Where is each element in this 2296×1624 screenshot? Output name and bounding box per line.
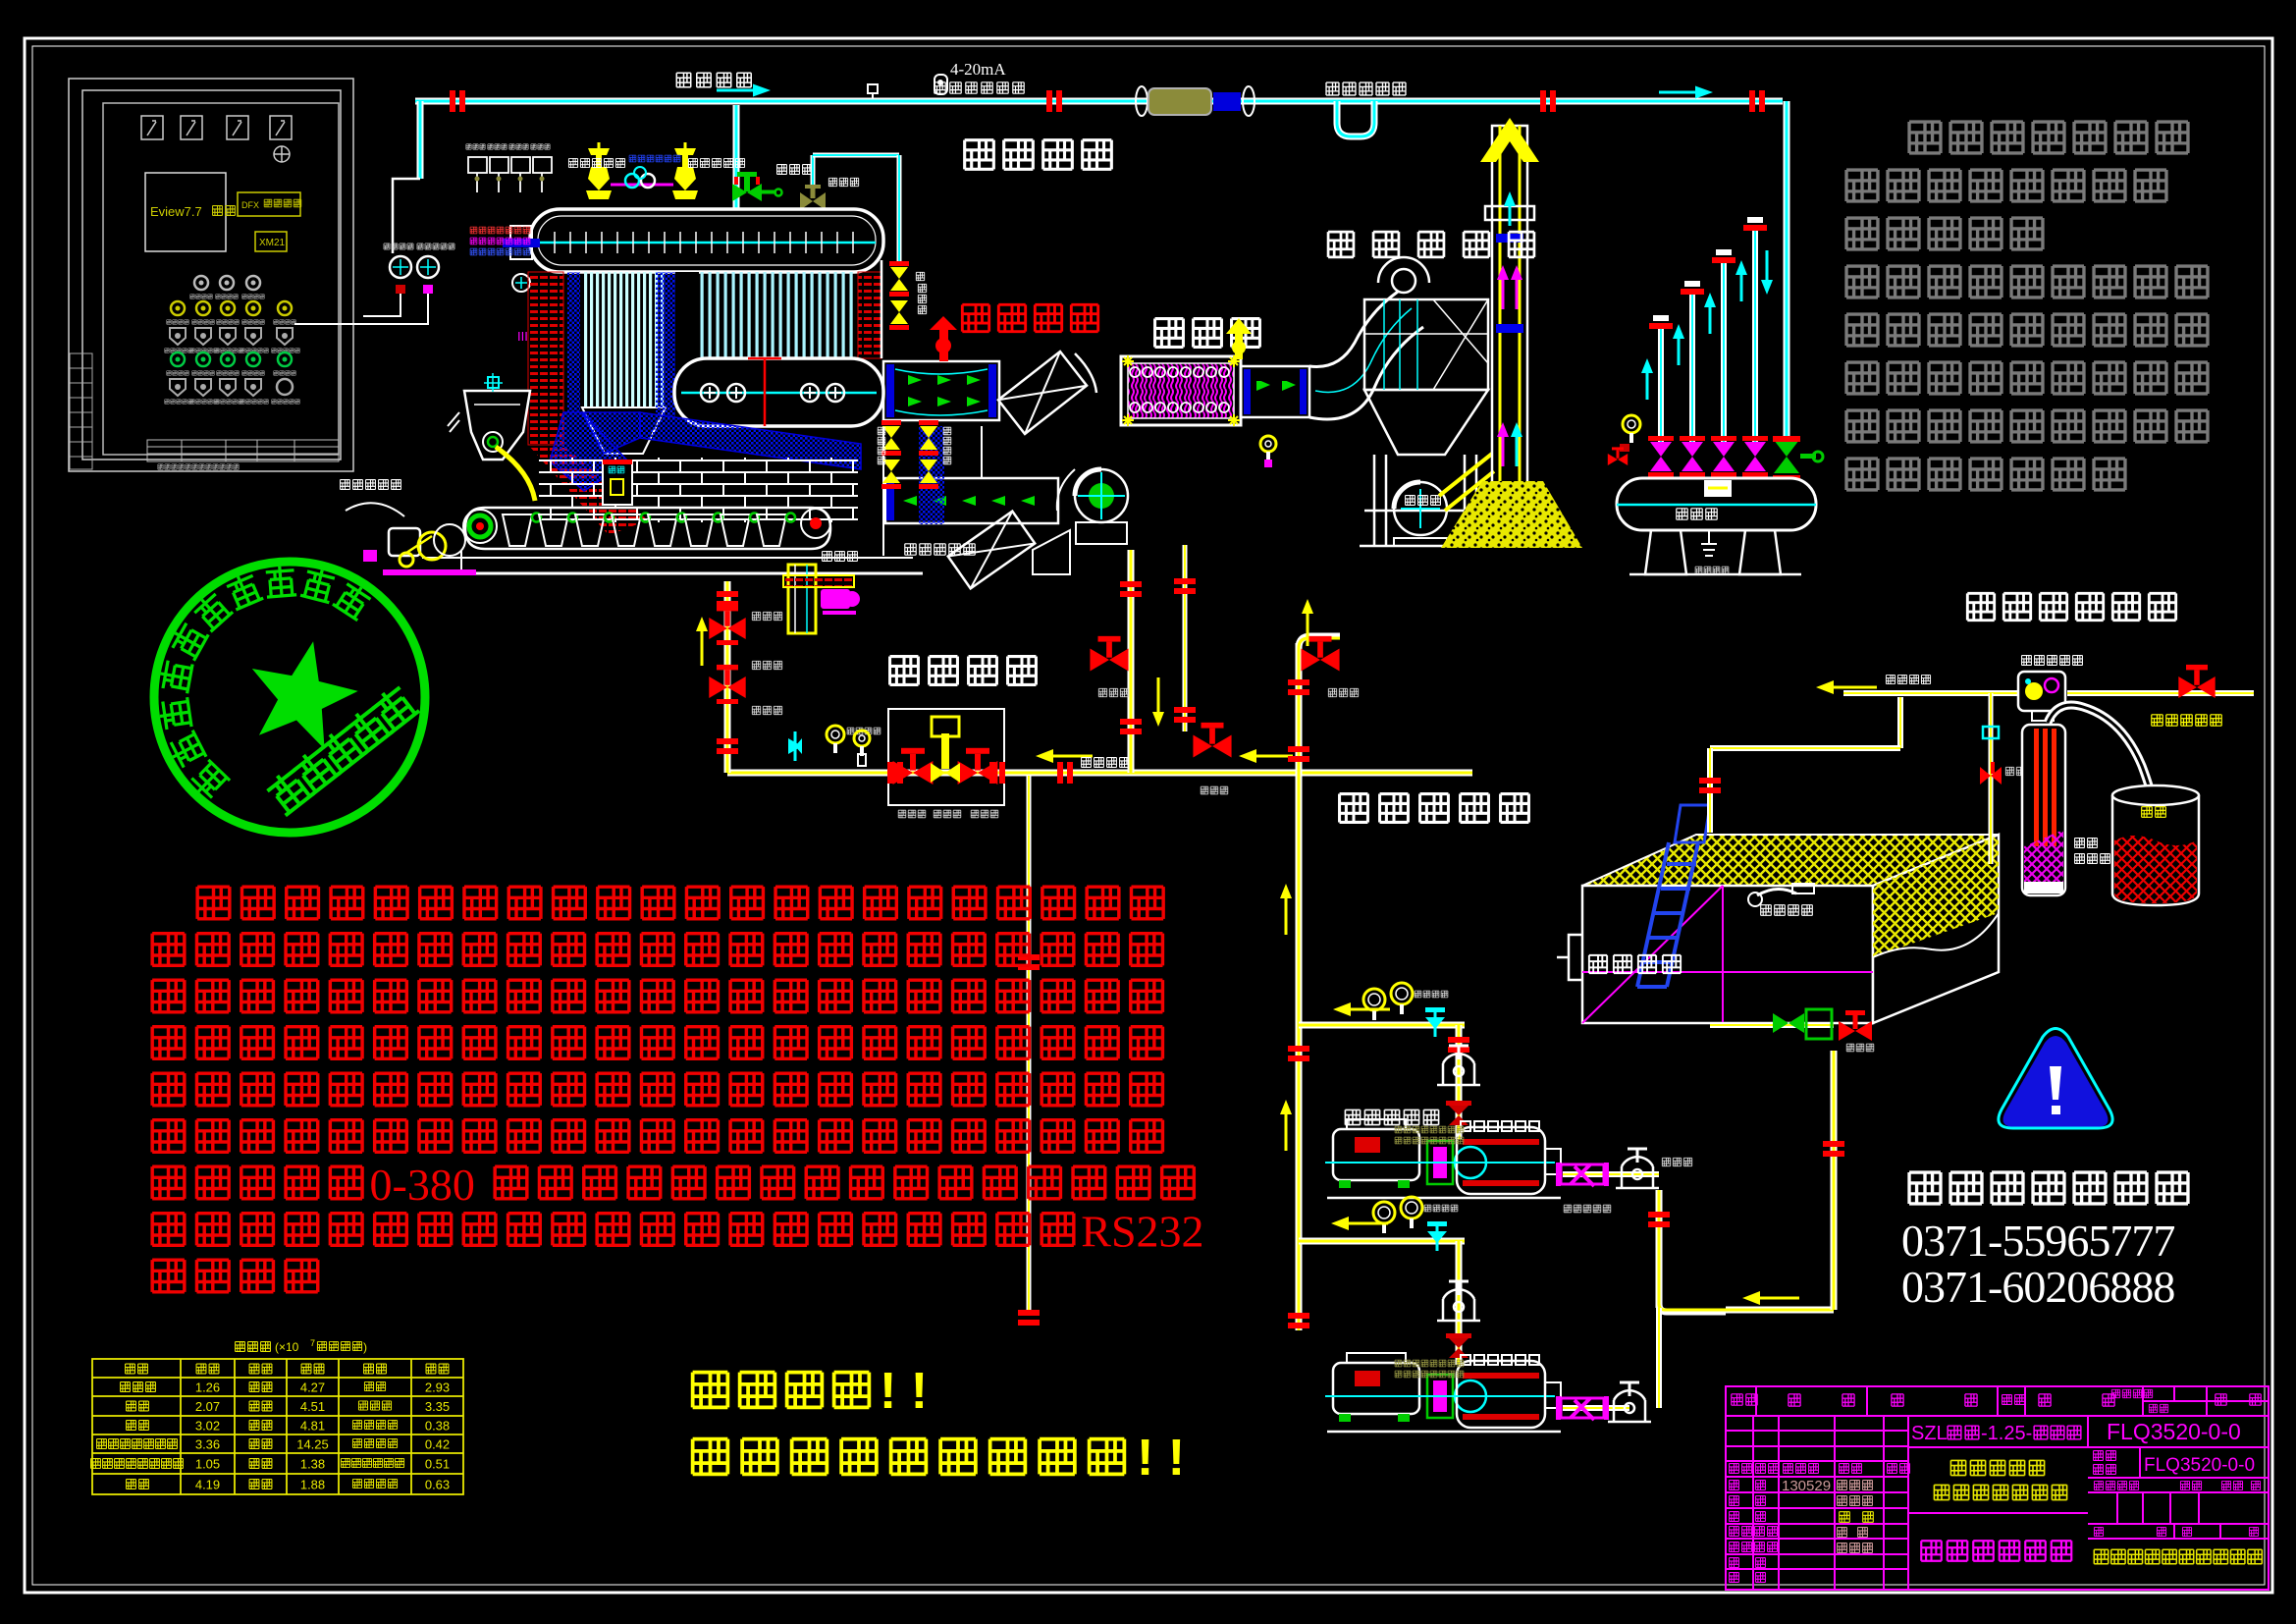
svg-text:3.35: 3.35 [425,1399,450,1414]
svg-text:1.38: 1.38 [300,1457,325,1472]
svg-text:2.93: 2.93 [425,1380,450,1395]
svg-text:0371-60206888: 0371-60206888 [1901,1262,2174,1312]
svg-text:3.02: 3.02 [195,1419,220,1434]
svg-text:0.63: 0.63 [425,1478,450,1492]
svg-text:! !: ! ! [880,1363,928,1420]
svg-text:1.26: 1.26 [195,1380,220,1395]
svg-text:SZL: SZL [1911,1423,1948,1444]
svg-text:): ) [363,1340,367,1354]
svg-text:0.38: 0.38 [425,1419,450,1434]
svg-text:-1.25-: -1.25- [1981,1423,2032,1444]
svg-text:Eview7.7: Eview7.7 [150,204,202,219]
svg-text:RS232: RS232 [1081,1207,1203,1257]
svg-text:3.36: 3.36 [195,1437,220,1452]
svg-text:0.42: 0.42 [425,1437,450,1452]
svg-text:1.88: 1.88 [300,1478,325,1492]
svg-text:14.25: 14.25 [296,1437,329,1452]
svg-text:FLQ3520-0-0: FLQ3520-0-0 [2107,1419,2241,1444]
svg-text:4.27: 4.27 [300,1380,325,1395]
svg-text:130529: 130529 [1782,1478,1831,1494]
svg-text:DFX: DFX [241,200,259,210]
svg-text:4.51: 4.51 [300,1399,325,1414]
svg-text:7: 7 [310,1338,315,1348]
svg-text:0371-55965777: 0371-55965777 [1901,1216,2174,1266]
svg-text:III: III [517,329,528,344]
svg-text:! !: ! ! [1137,1430,1185,1487]
svg-text:4-20mA: 4-20mA [950,60,1006,79]
svg-text:0.51: 0.51 [425,1457,450,1472]
svg-text:4.81: 4.81 [300,1419,325,1434]
svg-text:(×10: (×10 [275,1340,299,1354]
svg-text:FLQ3520-0-0: FLQ3520-0-0 [2144,1455,2255,1476]
svg-text:XM21: XM21 [259,238,286,248]
svg-text:2.07: 2.07 [195,1399,220,1414]
svg-text:1.05: 1.05 [195,1457,220,1472]
svg-text:4.19: 4.19 [195,1478,220,1492]
svg-text:0-380: 0-380 [370,1160,475,1210]
